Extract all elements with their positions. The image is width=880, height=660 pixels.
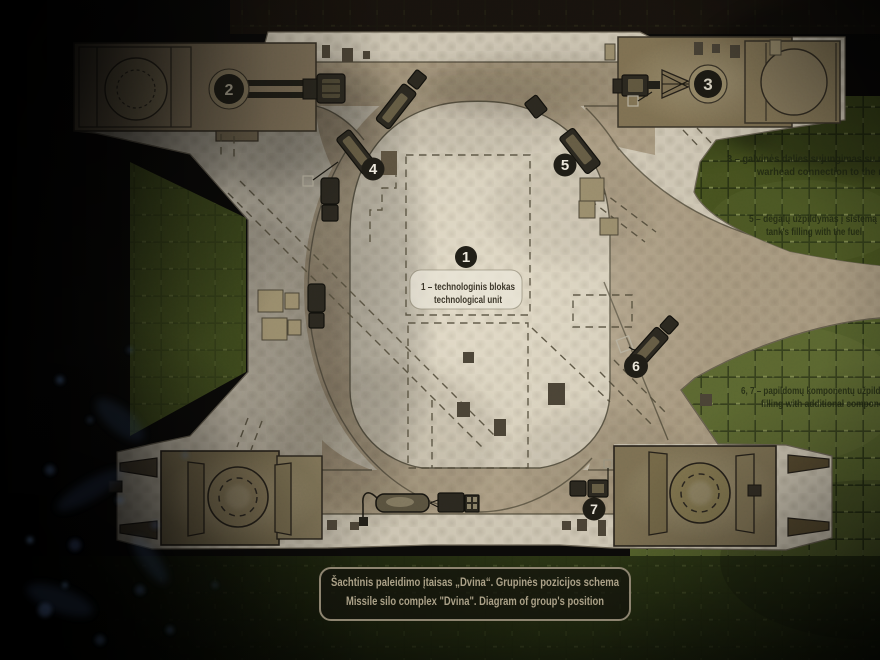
svg-text:Missile silo complex "Dvina".: Missile silo complex "Dvina". Diagram of… (346, 594, 604, 608)
svg-text:Šachtinis paleidimo įtaisas „D: Šachtinis paleidimo įtaisas „Dvina“. Gru… (331, 574, 619, 589)
